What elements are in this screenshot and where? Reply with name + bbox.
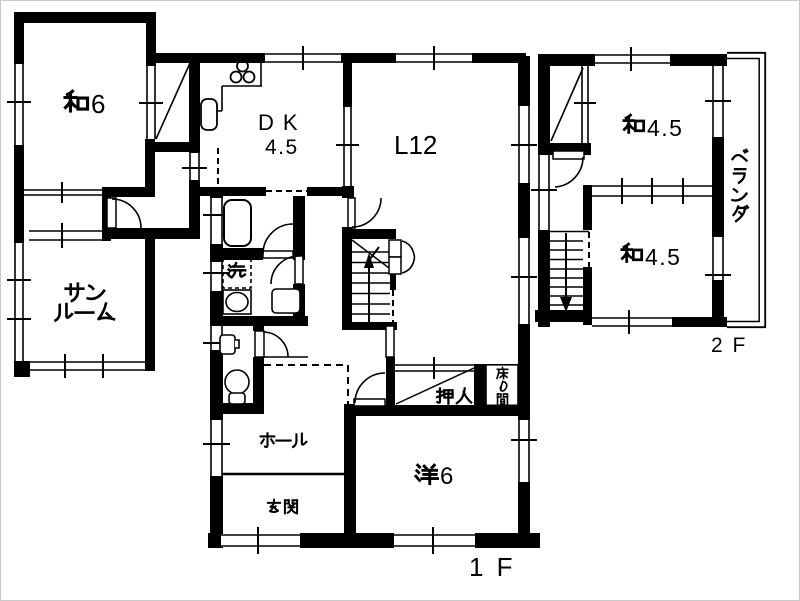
svg-text:4.5: 4.5 [645, 244, 681, 270]
svg-text:6: 6 [440, 463, 453, 490]
svg-text:DK: DK [258, 110, 307, 135]
svg-text:6: 6 [91, 89, 105, 119]
svg-text:1 F: 1 F [469, 552, 516, 582]
svg-text:4.5: 4.5 [647, 115, 683, 141]
svg-text:L12: L12 [394, 130, 437, 160]
svg-text:2 F: 2 F [711, 334, 747, 357]
svg-text:4.5: 4.5 [265, 136, 299, 159]
